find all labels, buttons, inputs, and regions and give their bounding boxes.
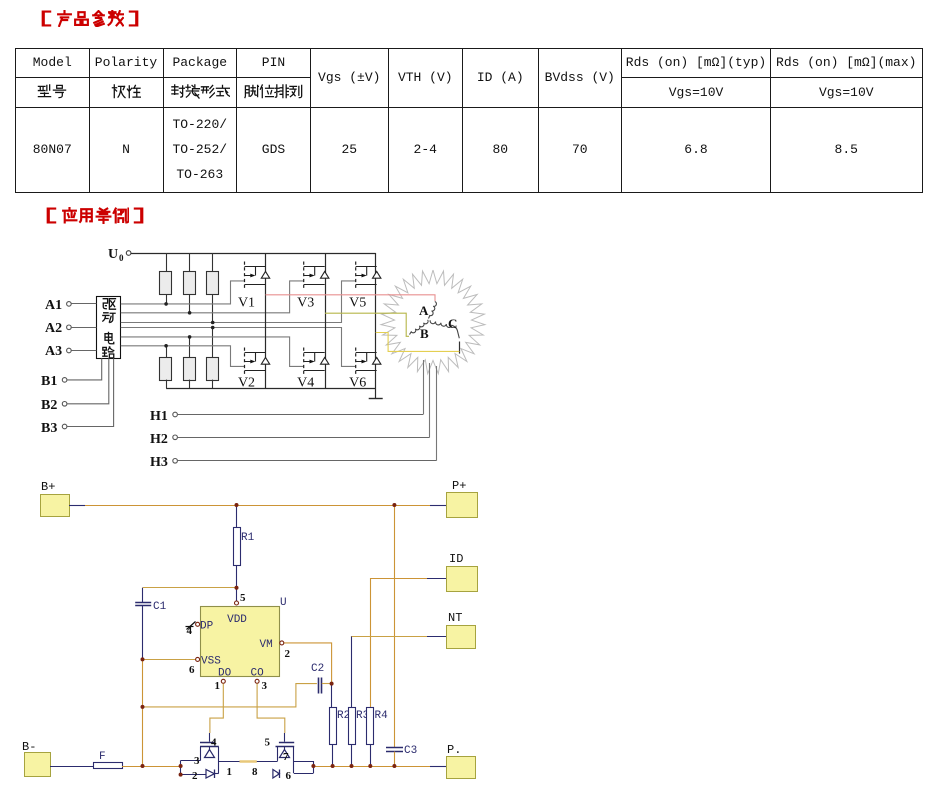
svg-text:C2: C2 bbox=[311, 663, 324, 675]
svg-text:B1: B1 bbox=[41, 374, 57, 389]
svg-text:B2: B2 bbox=[41, 398, 57, 413]
svg-text:5: 5 bbox=[265, 737, 271, 749]
svg-text:V2: V2 bbox=[238, 376, 255, 391]
svg-text:7: 7 bbox=[283, 751, 289, 763]
svg-text:H2: H2 bbox=[150, 432, 168, 447]
svg-text:P.: P. bbox=[447, 743, 461, 757]
svg-text:V3: V3 bbox=[297, 296, 314, 311]
svg-text:2: 2 bbox=[192, 770, 198, 782]
svg-text:C3: C3 bbox=[404, 745, 417, 757]
svg-text:VM: VM bbox=[260, 639, 273, 651]
svg-text:3: 3 bbox=[262, 680, 268, 692]
svg-text:B+: B+ bbox=[41, 480, 55, 494]
svg-text:6: 6 bbox=[286, 770, 292, 782]
svg-text:A: A bbox=[419, 303, 429, 318]
svg-text:NT: NT bbox=[448, 611, 462, 625]
svg-text:V6: V6 bbox=[349, 376, 366, 391]
svg-text:5: 5 bbox=[240, 592, 246, 604]
svg-text:8: 8 bbox=[252, 766, 258, 778]
svg-text:3: 3 bbox=[194, 755, 200, 767]
svg-text:B3: B3 bbox=[41, 421, 57, 436]
svg-text:4: 4 bbox=[211, 737, 217, 749]
svg-text:H3: H3 bbox=[150, 455, 168, 470]
svg-text:F: F bbox=[99, 751, 106, 763]
svg-text:V4: V4 bbox=[297, 376, 314, 391]
svg-text:6: 6 bbox=[189, 664, 195, 676]
svg-text:A2: A2 bbox=[45, 321, 62, 336]
svg-text:P+: P+ bbox=[452, 479, 466, 493]
svg-text:H1: H1 bbox=[150, 409, 168, 424]
svg-text:1: 1 bbox=[227, 766, 233, 778]
svg-text:DP: DP bbox=[200, 621, 214, 633]
svg-text:1: 1 bbox=[215, 680, 221, 692]
svg-text:U: U bbox=[108, 247, 118, 262]
svg-text:0: 0 bbox=[119, 253, 124, 263]
svg-text:V5: V5 bbox=[349, 296, 366, 311]
svg-text:B-: B- bbox=[22, 740, 36, 754]
svg-text:VDD: VDD bbox=[227, 614, 247, 626]
svg-text:2: 2 bbox=[285, 648, 291, 660]
svg-text:ID: ID bbox=[449, 552, 463, 566]
svg-text:VSS: VSS bbox=[201, 656, 221, 668]
svg-text:B: B bbox=[420, 326, 429, 341]
svg-text:DO: DO bbox=[218, 668, 232, 680]
svg-text:C: C bbox=[448, 316, 457, 331]
svg-text:R4: R4 bbox=[375, 710, 389, 722]
svg-text:CO: CO bbox=[251, 668, 265, 680]
svg-text:C1: C1 bbox=[153, 601, 167, 613]
svg-text:A3: A3 bbox=[45, 344, 62, 359]
svg-text:U: U bbox=[280, 597, 287, 609]
svg-text:V1: V1 bbox=[238, 296, 255, 311]
svg-text:A1: A1 bbox=[45, 298, 62, 313]
svg-text:R1: R1 bbox=[241, 532, 255, 544]
